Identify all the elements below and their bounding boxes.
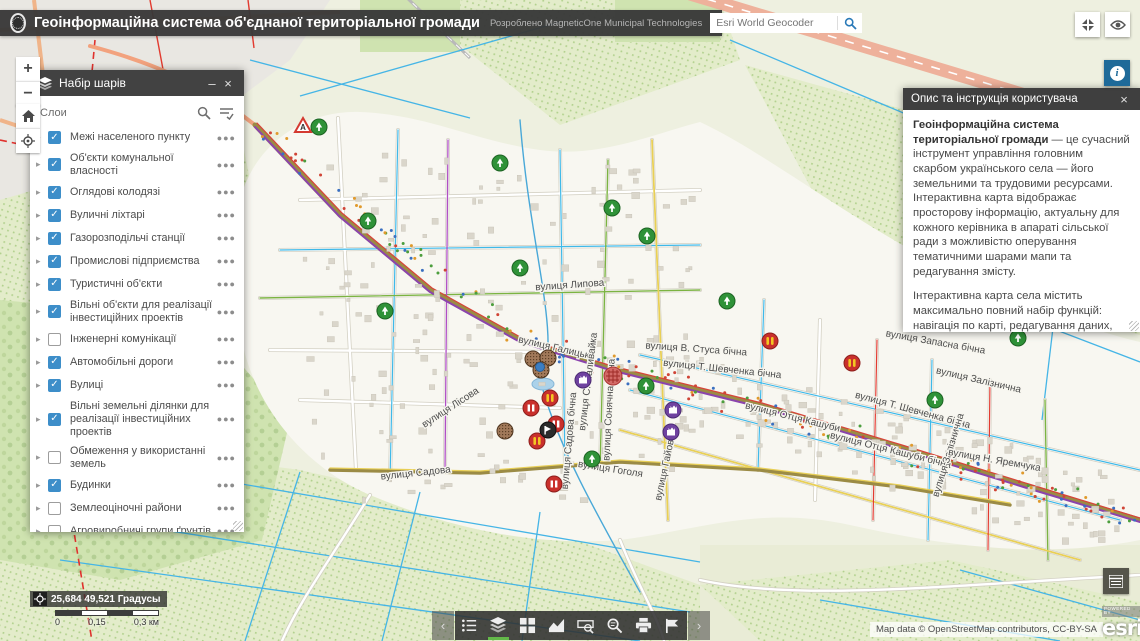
layer-checkbox[interactable]: ✓ [48,232,61,245]
poi-marker-purple[interactable] [575,372,591,388]
esri-wordmark: esri [1102,616,1140,640]
layer-checkbox[interactable] [48,333,61,346]
close-icon[interactable]: × [220,77,236,90]
layer-menu-icon[interactable]: ●●● [217,133,236,143]
layer-menu-icon[interactable]: ●●● [217,279,236,289]
layers-tool-button[interactable] [484,611,513,640]
info-button[interactable]: i [1104,60,1130,86]
search-button[interactable] [838,13,862,33]
collapse-arrows-icon [1081,18,1095,32]
scale-tick: 0,15 [88,617,106,627]
search-icon [844,17,857,30]
poi-marker-redlamp[interactable] [762,333,778,349]
layer-menu-icon[interactable]: ●●● [217,380,236,390]
draw-icon [664,617,681,634]
expand-caret-icon[interactable]: ▸ [36,414,48,425]
query-tool-button[interactable] [600,611,629,640]
layer-list-item[interactable]: ▸ Обмеження у використанні земель ●●● [30,442,244,474]
poi-marker-brown[interactable] [497,423,513,439]
layer-checkbox[interactable] [48,525,61,532]
layer-checkbox[interactable]: ✓ [48,158,61,171]
minimize-button[interactable]: – [204,77,220,90]
poi-marker-redlamp[interactable] [844,355,860,371]
poi-marker-bluedot[interactable] [536,363,545,372]
expand-caret-icon[interactable]: ▸ [36,187,48,198]
poi-marker-dark[interactable] [540,422,556,438]
measurement-icon [577,617,594,634]
layer-label: Туристичні об'єкти [70,278,217,291]
layer-list-item[interactable]: ▸ ✓ Будинки ●●● [30,474,244,497]
layer-checkbox[interactable]: ✓ [48,131,61,144]
poi-marker-green[interactable] [377,303,393,319]
layer-checkbox[interactable]: ✓ [48,186,61,199]
expand-caret-icon[interactable]: ▸ [36,256,48,267]
resize-handle[interactable] [233,521,243,531]
expand-caret-icon[interactable]: ▸ [36,480,48,491]
measurement-tool-button[interactable] [571,611,600,640]
layer-checkbox[interactable]: ✓ [48,305,61,318]
layer-label: Межі населеного пункту [70,131,217,144]
poi-marker-green[interactable] [1010,330,1026,346]
layer-label: Землеоціночні райони [70,502,217,515]
powered-by-label: POWERED BY [1102,606,1140,617]
layer-checkbox[interactable]: ✓ [48,413,61,426]
poi-marker-purple[interactable] [665,402,681,418]
app-title: Геоінформаційна система об'єднаної терит… [34,15,480,31]
app-subtitle: Розроблено MagneticOne Municipal Technol… [490,18,702,29]
legend-tool-button[interactable] [455,611,484,640]
layer-search-icon[interactable] [197,106,211,120]
expand-caret-icon[interactable]: ▸ [36,503,48,514]
expand-caret-icon[interactable]: ▸ [36,233,48,244]
zoom-in-button[interactable]: + [16,57,40,81]
chart-icon [548,617,565,634]
poi-marker-red[interactable] [523,400,539,416]
print-icon [635,617,652,634]
expand-caret-icon[interactable]: ▸ [36,334,48,345]
layer-menu-icon[interactable]: ●●● [217,480,236,490]
layer-label: Вулиці [70,379,217,392]
layer-filter-icon[interactable] [219,107,234,120]
attribute-table-button[interactable] [1103,568,1129,594]
layer-list-item[interactable]: ▸ ✓ Межі населеного пункту ●●● [30,126,244,149]
layer-label: Газорозподільчі станції [70,232,217,245]
crosshair-icon [33,592,47,606]
layer-checkbox[interactable] [48,502,61,515]
svg-text:А: А [300,123,306,132]
layer-list-item[interactable]: ▸ Агровиробничі групи ґрунтів ●●● [30,520,244,532]
layers-icon [490,617,507,634]
layer-label: Обмеження у використанні земель [70,445,217,471]
layer-checkbox[interactable]: ✓ [48,379,61,392]
layers-panel-body: Слои ▸ ✓ Межі населеного пункту ●●● ▸ ✓ … [30,96,244,532]
search-input[interactable] [710,17,837,29]
poi-marker-green[interactable] [512,260,528,276]
map-attribution: Map data © OpenStreetMap contributors, C… [870,622,1103,637]
expand-caret-icon[interactable]: ▸ [36,279,48,290]
resize-handle[interactable] [1129,321,1139,331]
app-logo [10,13,26,33]
poi-marker-purple[interactable] [663,424,679,440]
legend-icon [461,617,478,634]
coordinates-value: 25,684 49,521 Градусы [51,594,161,605]
bottom-toolbar [455,611,687,640]
layer-label: Вільні об'єкти для реалізації інвестицій… [70,299,217,325]
layer-list-item[interactable]: ▸ ✓ Вільні земельні ділянки для реалізац… [30,397,244,442]
overview-toggle-button[interactable] [1105,12,1130,37]
description-paragraph: Геоінформаційна система територіальної г… [913,118,1130,279]
description-panel: Опис та інструкція користувача × Геоінфо… [903,88,1140,332]
poi-marker-green[interactable] [639,228,655,244]
collapse-button[interactable] [1075,12,1100,37]
layer-list-item[interactable]: ▸ ✓ Вільні об'єкти для реалізації інвест… [30,296,244,328]
locate-icon [21,134,35,148]
zoom-controls: + − [16,57,40,106]
scale-bar: 0 0,15 0,3 км [55,610,159,627]
layer-list-item[interactable]: ▸ Землеоціночні райони ●●● [30,497,244,520]
print-tool-button[interactable] [629,611,658,640]
chart-tool-button[interactable] [542,611,571,640]
layer-label: Будинки [70,479,217,492]
layers-subtitle: Слои [40,107,197,119]
locate-button[interactable] [16,128,40,153]
layer-list-item[interactable]: ▸ ✓ Вулиці ●●● [30,374,244,397]
expand-caret-icon[interactable]: ▸ [36,357,48,368]
layers-panel: Набір шарів – × Слои ▸ ✓ Межі населеного… [30,70,244,532]
poi-marker-green[interactable] [638,378,654,394]
description-paragraph: Інтерактивна карта села містить максимал… [913,289,1130,332]
layer-menu-icon[interactable]: ●●● [217,256,236,266]
layer-list-item[interactable]: ▸ ✓ Газорозподільчі станції ●●● [30,227,244,250]
eye-icon [1110,19,1126,31]
layer-menu-icon[interactable]: ●●● [217,503,236,513]
basemap-gallery-tool-button[interactable] [513,611,542,640]
zoom-out-button[interactable]: − [16,81,40,106]
poi-marker-green[interactable] [492,155,508,171]
home-icon [22,110,35,122]
layer-list-item[interactable]: ▸ ✓ Вуличні ліхтарі ●●● [30,204,244,227]
layer-list: ▸ ✓ Межі населеного пункту ●●● ▸ ✓ Об'єк… [30,126,244,532]
poi-marker-green[interactable] [604,200,620,216]
layer-list-item[interactable]: ▸ ✓ Об'єкти комунальної власності ●●● [30,149,244,181]
layer-list-item[interactable]: ▸ ✓ Туристичні об'єкти ●●● [30,273,244,296]
layer-menu-icon[interactable]: ●●● [217,187,236,197]
layer-checkbox[interactable]: ✓ [48,278,61,291]
layer-menu-icon[interactable]: ●●● [217,210,236,220]
layers-panel-header[interactable]: Набір шарів – × [30,70,244,96]
layer-menu-icon[interactable]: ●●● [217,357,236,367]
description-panel-body: Геоінформаційна система територіальної г… [903,110,1140,332]
layer-checkbox[interactable]: ✓ [48,255,61,268]
layers-panel-title: Набір шарів [59,76,204,90]
info-icon: i [1110,66,1125,81]
layer-label: Автомобільні дороги [70,356,217,369]
description-panel-title: Опис та інструкція користувача [911,93,1116,105]
layer-menu-icon[interactable]: ●●● [217,334,236,344]
layer-label: Агровиробничі групи ґрунтів [70,525,217,532]
layers-icon [38,77,52,90]
draw-tool-button[interactable] [658,611,687,640]
expand-caret-icon[interactable]: ▸ [36,452,48,463]
layer-label: Вільні земельні ділянки для реалізації і… [70,400,217,439]
poi-marker-green[interactable] [584,451,600,467]
expand-caret-icon[interactable]: ▸ [36,159,48,170]
poi-marker-green[interactable] [311,119,327,135]
expand-caret-icon[interactable]: ▸ [36,306,48,317]
layer-label: Об'єкти комунальної власності [70,152,217,178]
layer-checkbox[interactable] [48,451,61,464]
layer-label: Промислові підприємства [70,255,217,268]
home-button[interactable] [16,104,40,128]
layer-menu-icon[interactable]: ●●● [217,414,236,424]
layer-list-item[interactable]: ▸ ✓ Оглядові колодязі ●●● [30,181,244,204]
layer-menu-icon[interactable]: ●●● [217,160,236,170]
expand-caret-icon[interactable]: ▸ [36,210,48,221]
poi-marker-redlamp[interactable] [542,390,558,406]
layer-list-item[interactable]: ▸ ✓ Промислові підприємства ●●● [30,250,244,273]
layer-checkbox[interactable]: ✓ [48,209,61,222]
coordinates-readout: 25,684 49,521 Градусы [30,591,167,607]
query-icon [606,617,623,634]
scale-tick: 0 [55,617,60,627]
layer-menu-icon[interactable]: ●●● [217,233,236,243]
close-icon[interactable]: × [1116,93,1132,106]
nav-controls [16,104,40,153]
layer-menu-icon[interactable]: ●●● [217,453,236,463]
layer-menu-icon[interactable]: ●●● [217,307,236,317]
layer-checkbox[interactable]: ✓ [48,356,61,369]
layer-label: Вуличні ліхтарі [70,209,217,222]
poi-marker-green[interactable] [719,293,735,309]
layer-label: Оглядові колодязі [70,186,217,199]
poi-marker-red[interactable] [546,476,562,492]
scale-tick: 0,3 км [134,617,159,627]
poi-marker-green[interactable] [927,392,943,408]
expand-caret-icon[interactable]: ▸ [36,380,48,391]
layer-label: Інженерні комунікації [70,333,217,346]
layer-checkbox[interactable]: ✓ [48,479,61,492]
poi-marker-redhatch[interactable] [604,367,622,385]
expand-caret-icon[interactable]: ▸ [36,526,48,532]
layer-list-item[interactable]: ▸ Інженерні комунікації ●●● [30,328,244,351]
app-header: Геоінформаційна система об'єднаної терит… [0,10,722,36]
toolbar-next-button[interactable]: › [688,611,710,640]
layer-list-item[interactable]: ▸ ✓ Автомобільні дороги ●●● [30,351,244,374]
basemap-gallery-icon [519,617,536,634]
description-panel-header[interactable]: Опис та інструкція користувача × [903,88,1140,110]
table-icon [1109,575,1123,588]
geocoder-searchbox[interactable] [710,13,862,33]
toolbar-prev-button[interactable]: ‹ [432,611,454,640]
poi-marker-green[interactable] [360,213,376,229]
esri-logo: POWERED BY esri [1102,602,1140,639]
